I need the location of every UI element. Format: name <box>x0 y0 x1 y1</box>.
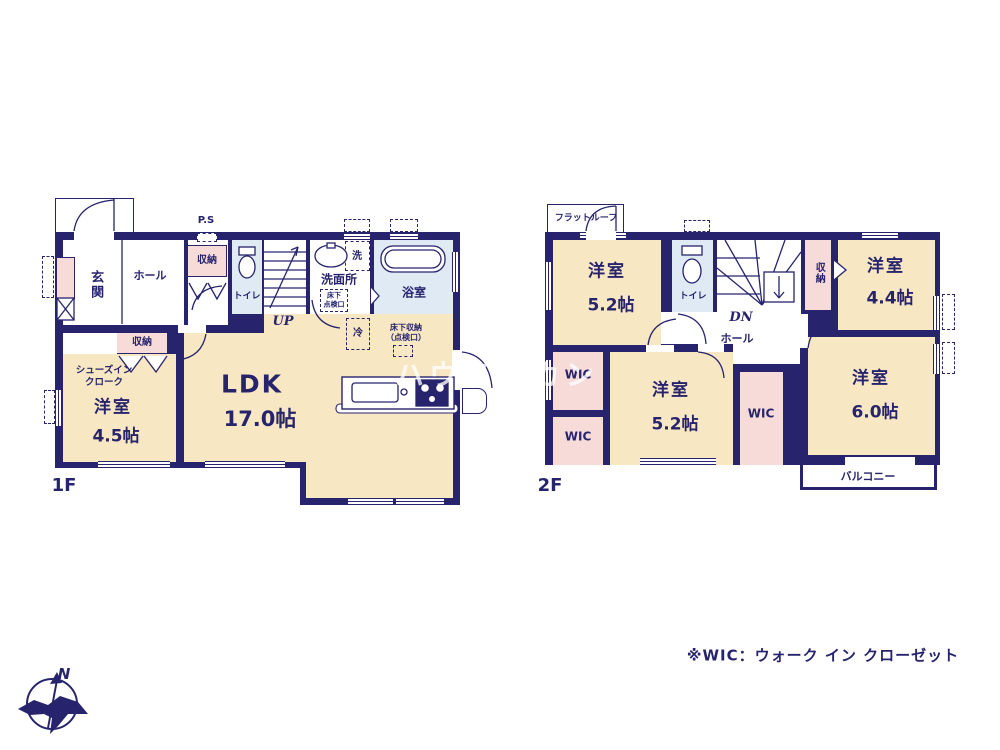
window <box>390 233 418 240</box>
door-gap <box>586 232 616 240</box>
compass-north-label: N <box>58 665 71 683</box>
label-hall-2f: ホール <box>721 332 754 346</box>
room-toilet-1f <box>232 240 262 314</box>
room-stairs-2f <box>717 240 801 312</box>
room-bedroom-60 <box>808 337 935 455</box>
label-bedroom-60-size: 6.0帖 <box>851 402 898 423</box>
label-shoes-closet-line2: クローク <box>76 377 133 389</box>
ps-dashed-box <box>197 233 217 242</box>
window <box>545 262 552 310</box>
label-underfloor-storage: 床下収納 （点検口） <box>386 323 426 343</box>
label-fridge: 冷 <box>353 328 363 341</box>
door-gap <box>74 232 114 240</box>
label-bedroom-52top: 洋室 <box>588 261 626 282</box>
footnote-wic: ※WIC：ウォーク イン クローゼット <box>687 647 959 666</box>
door-gap <box>800 314 808 348</box>
window <box>452 252 459 292</box>
window <box>640 458 716 465</box>
label-genkan: 玄関 <box>87 270 103 300</box>
label-washer: 洗 <box>352 251 362 264</box>
room-step-area <box>63 333 117 354</box>
porch-outline <box>55 198 134 236</box>
door-gap <box>646 345 674 352</box>
label-floor2: 2F <box>538 475 563 498</box>
label-underfloor-hatch-line1: 床下 <box>324 291 345 300</box>
dashed-box <box>42 256 54 298</box>
label-toilet-1f: トイレ <box>233 291 260 302</box>
room-bedroom-52-top <box>553 240 661 345</box>
dashed-box <box>942 294 955 330</box>
window <box>344 233 370 240</box>
room-stairs-1f <box>264 240 306 314</box>
window <box>396 498 444 505</box>
label-bedroom-52btm: 洋室 <box>652 380 690 401</box>
label-shoes-closet: シューズイン クローク <box>76 365 133 389</box>
balcony-door-gap <box>845 457 915 465</box>
label-bedroom-52btm-size: 5.2帖 <box>651 414 698 435</box>
room-bath <box>374 240 453 314</box>
window <box>933 344 940 374</box>
label-underfloor-storage-line1: 床下収納 <box>386 323 426 333</box>
compass-icon: N <box>18 665 88 734</box>
door-gap <box>178 325 206 333</box>
label-bedroom-52top-size: 5.2帖 <box>587 295 634 316</box>
dashed-box <box>390 219 418 232</box>
label-bedroom-45: 洋室 <box>94 397 132 418</box>
label-flat-roof: フラットルーフ <box>555 213 617 224</box>
genkan-niche <box>57 258 74 298</box>
label-storage-top: 収納 <box>197 255 217 268</box>
dashed-box <box>344 219 370 232</box>
label-shoes-closet-line1: シューズイン <box>76 365 133 377</box>
watermark: ハウスボカン <box>395 352 599 394</box>
window <box>98 461 170 468</box>
label-underfloor-hatch: 床下 点検口 <box>324 291 345 309</box>
label-bedroom-44: 洋室 <box>867 256 905 277</box>
label-ldk: LDK <box>221 368 283 399</box>
room-bedroom-52-btm <box>610 352 733 465</box>
label-storage-2f: 収納 <box>812 262 825 284</box>
dashed-box <box>942 342 955 374</box>
label-dn: DN <box>729 310 752 326</box>
label-up: UP <box>272 314 293 330</box>
label-washroom: 洗面所 <box>321 273 357 288</box>
label-balcony: バルコニー <box>841 470 896 484</box>
window <box>862 232 898 239</box>
label-wic2: WIC <box>565 430 592 445</box>
label-wic3: WIC <box>748 407 775 422</box>
label-bedroom-45-size: 4.5帖 <box>92 426 139 447</box>
dashed-box <box>684 220 710 232</box>
label-ldk-size: 17.0帖 <box>224 406 297 432</box>
label-storage-lower: 収納 <box>132 337 152 350</box>
room-bedroom-44 <box>838 240 935 330</box>
label-hall-1f: ホール <box>134 269 167 283</box>
label-floor1: 1F <box>52 475 77 498</box>
window <box>205 461 285 468</box>
dashed-box <box>44 390 55 424</box>
window <box>348 498 393 505</box>
label-underfloor-storage-line2: （点検口） <box>386 333 426 343</box>
window <box>933 296 940 330</box>
label-bedroom-60: 洋室 <box>852 368 890 389</box>
label-bath: 浴室 <box>402 286 426 301</box>
floor-plan-image: N 玄関 ホール 収納 P.S トイレ UP 洗面所 床下 点検口 洗 浴室 冷… <box>0 0 1000 750</box>
label-toilet-2f: トイレ <box>679 291 706 302</box>
label-ps: P.S <box>198 215 215 228</box>
label-underfloor-hatch-line2: 点検口 <box>324 300 345 309</box>
window <box>55 390 62 426</box>
room-ldk-c <box>306 400 453 498</box>
label-bedroom-44-size: 4.4帖 <box>866 288 913 309</box>
